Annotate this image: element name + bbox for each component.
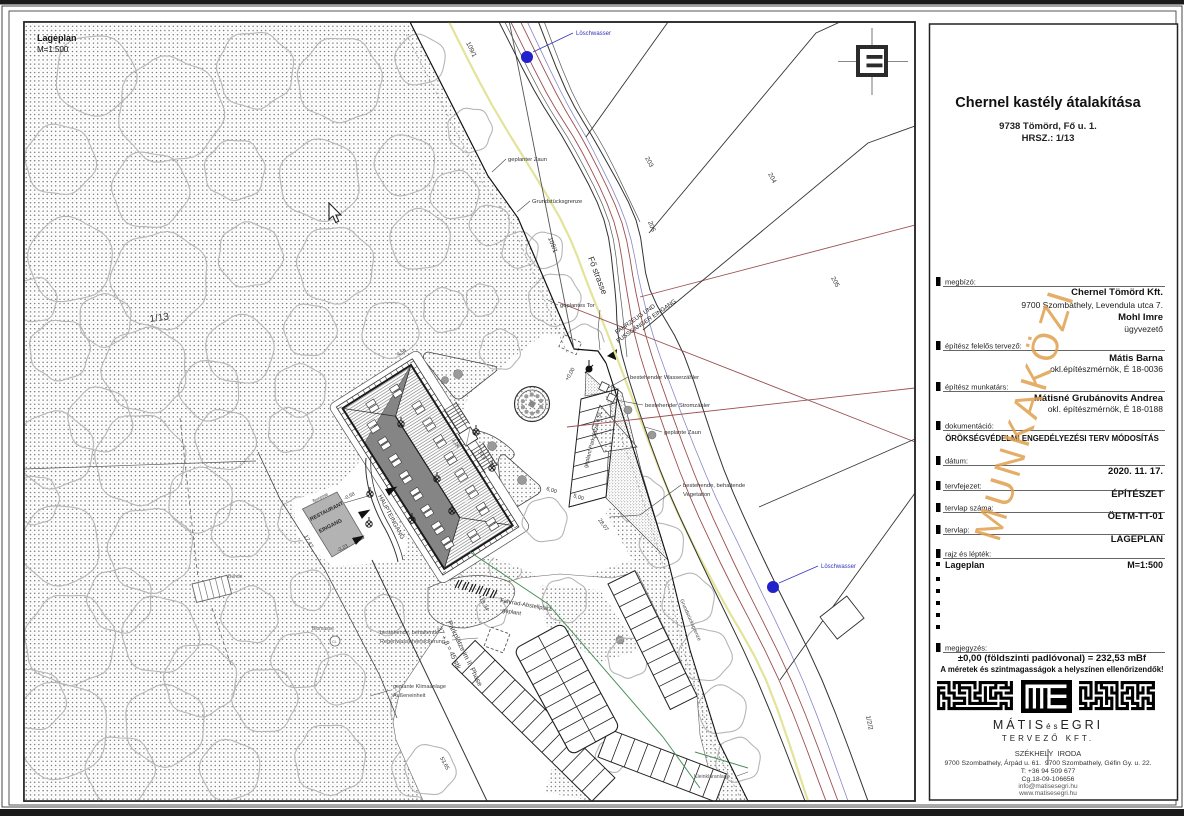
svg-text:www.matisesegri.hu: www.matisesegri.hu (1018, 790, 1077, 797)
svg-text:tervfejezet:: tervfejezet: (945, 482, 982, 491)
svg-text:info@matisesegri.hu: info@matisesegri.hu (1018, 783, 1078, 790)
svg-text:bestehender Stromzähler: bestehender Stromzähler (645, 403, 710, 409)
svg-text:dátum:: dátum: (945, 457, 968, 466)
svg-text:geplante Klimaanlage: geplante Klimaanlage (393, 684, 446, 690)
svg-text:TERVEZŐ KFT.: TERVEZŐ KFT. (1002, 734, 1094, 743)
svg-text:Mátis Barna: Mátis Barna (1109, 353, 1164, 364)
svg-text:Lageplan: Lageplan (945, 560, 985, 570)
svg-text:A méretek és szintmagasságok a: A méretek és szintmagasságok a helyszíne… (940, 665, 1163, 674)
svg-text:Vegetation: Vegetation (683, 492, 710, 498)
svg-text:bestehende, behaltende: bestehende, behaltende (683, 483, 745, 489)
svg-text:ÖETM-TT-01: ÖETM-TT-01 (1108, 511, 1164, 522)
svg-text:CL: CL (332, 640, 337, 644)
svg-text:ÉPÍTÉSZET: ÉPÍTÉSZET (1111, 489, 1163, 500)
svg-text:Grundstücksgrenze: Grundstücksgrenze (532, 199, 582, 205)
svg-text:Lageplan: Lageplan (37, 33, 77, 43)
svg-text:Löschwasser: Löschwasser (821, 564, 856, 570)
svg-text:építész felelős tervező:: építész felelős tervező: (945, 342, 1022, 351)
svg-text:ÖRÖKSÉGVÉDELMI ENGEDÉLYEZÉSI T: ÖRÖKSÉGVÉDELMI ENGEDÉLYEZÉSI TERV MÓDOSÍ… (945, 434, 1159, 443)
svg-text:HRSZ.: 1/13: HRSZ.: 1/13 (1022, 133, 1075, 144)
svg-text:okl.építészmérnök, É 18-0036: okl.építészmérnök, É 18-0036 (1050, 364, 1163, 374)
svg-text:geplantes Tor: geplantes Tor (560, 303, 595, 309)
svg-text:Chernel Tömörd Kft.: Chernel Tömörd Kft. (1071, 287, 1163, 298)
svg-text:Cg.18-09-106656: Cg.18-09-106656 (1022, 776, 1075, 783)
svg-text:geplanter Zaun: geplanter Zaun (508, 157, 547, 163)
svg-text:9738 Tömörd, Fő u. 1.: 9738 Tömörd, Fő u. 1. (999, 121, 1097, 132)
svg-text:M=1:500: M=1:500 (37, 45, 69, 54)
svg-text:okl. építészmérnök, É 18-0188: okl. építészmérnök, É 18-0188 (1048, 404, 1164, 414)
svg-text:ügyvezető: ügyvezető (1124, 324, 1163, 334)
svg-text:bestehende, behaltende: bestehende, behaltende (380, 630, 439, 636)
svg-text:tervlap:: tervlap: (945, 526, 970, 535)
svg-text:M=1:500: M=1:500 (1127, 560, 1163, 570)
svg-text:Löschwasser: Löschwasser (576, 31, 611, 37)
svg-text:Kleinkläranlage: Kleinkläranlage (694, 774, 730, 780)
svg-text:geplante Zaun: geplante Zaun (664, 430, 701, 436)
svg-text:Regenwasserversickerung: Regenwasserversickerung (380, 639, 445, 645)
svg-text:megjegyzés:: megjegyzés: (945, 644, 987, 653)
svg-text:dokumentáció:: dokumentáció: (945, 422, 994, 431)
svg-text:9700 Szombathely, Árpád u. 61.: 9700 Szombathely, Árpád u. 61. 9700 Szom… (944, 758, 1151, 767)
svg-text:Außeneinheit: Außeneinheit (393, 693, 426, 699)
svg-text:Biomasse: Biomasse (312, 626, 334, 632)
svg-text:T: +36 94 509 677: T: +36 94 509 677 (1021, 768, 1076, 775)
svg-text:Mohl Imre: Mohl Imre (1118, 312, 1163, 323)
svg-text:Chernel kastély átalakítása: Chernel kastély átalakítása (955, 95, 1141, 111)
svg-text:bestehender Wasserzähler: bestehender Wasserzähler (630, 375, 699, 381)
svg-text:2020. 11. 17.: 2020. 11. 17. (1108, 466, 1163, 477)
svg-text:rajz és lépték:: rajz és lépték: (945, 550, 991, 559)
svg-text:±0,00 (földszinti padlóvonal): ±0,00 (földszinti padlóvonal) = 232,53 m… (958, 653, 1147, 664)
svg-text:megbízó:: megbízó: (945, 278, 976, 287)
svg-text:Bühde: Bühde (228, 574, 243, 580)
svg-text:LAGEPLAN: LAGEPLAN (1111, 534, 1163, 545)
svg-text:építész munkatárs:: építész munkatárs: (945, 383, 1008, 392)
